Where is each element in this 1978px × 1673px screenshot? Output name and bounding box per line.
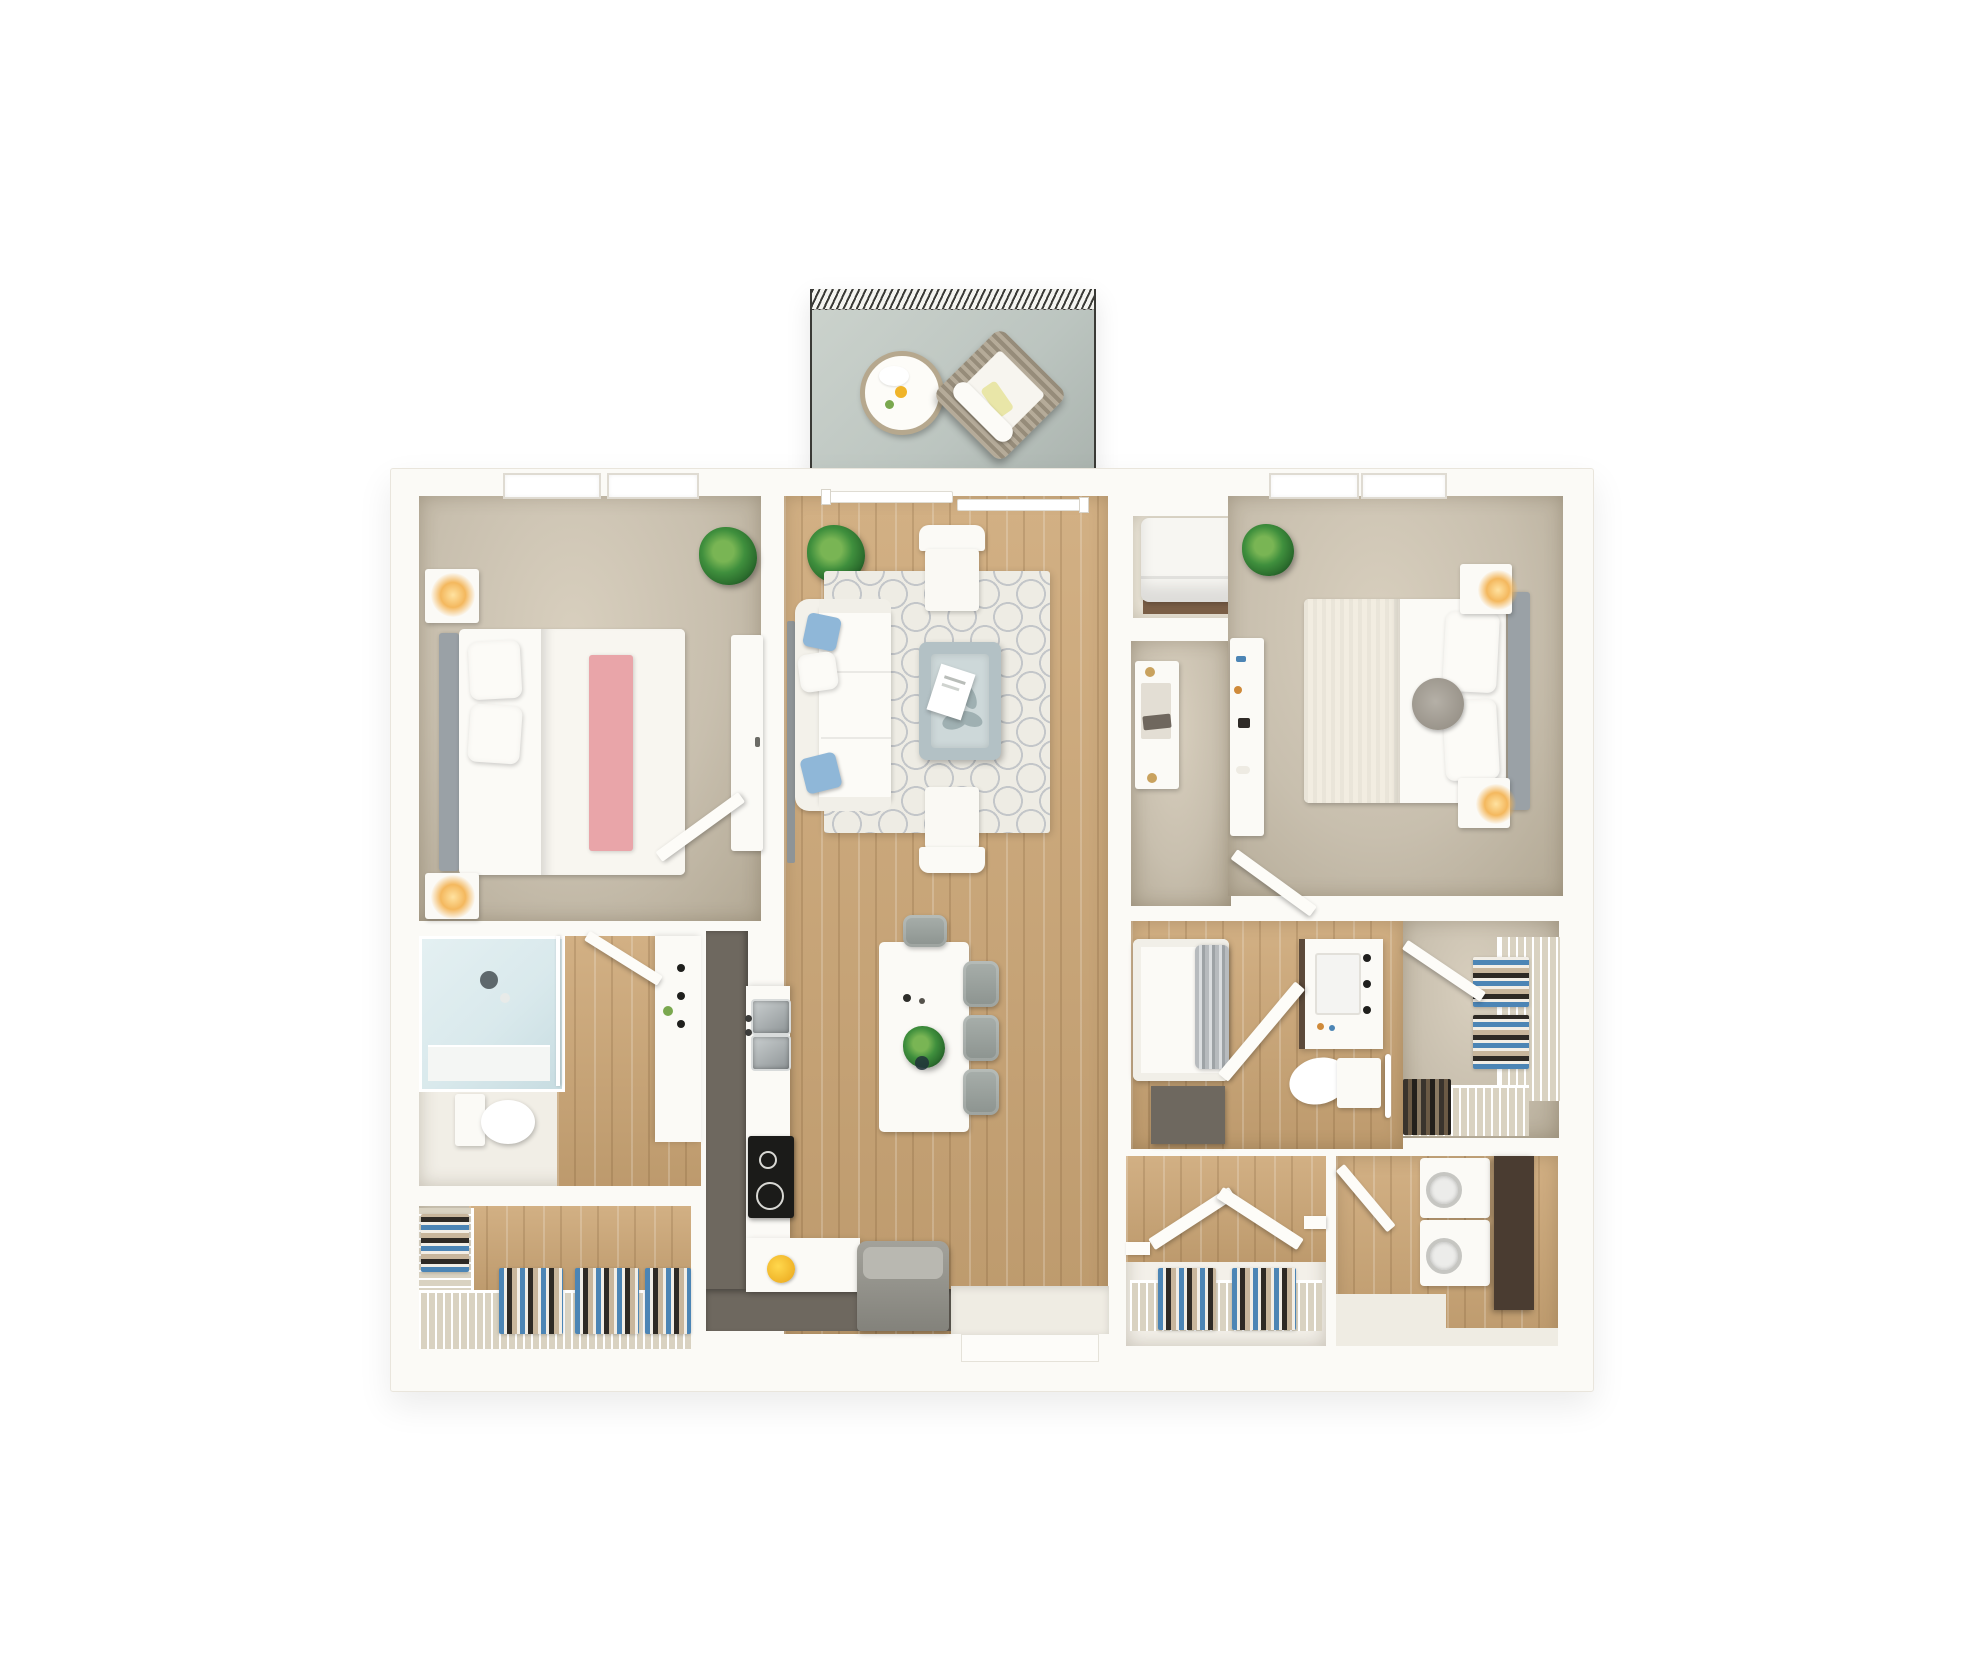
room-balcony xyxy=(810,289,1096,479)
burner-small xyxy=(759,1151,777,1169)
vanity1 xyxy=(655,936,701,1142)
closet1-clothes-2 xyxy=(575,1268,639,1334)
dining-chair-top xyxy=(903,915,947,947)
sofa-white-pillow xyxy=(797,651,840,694)
armchair-bottom-seat xyxy=(925,787,979,849)
bedroom1-window-right xyxy=(607,473,699,499)
bedroom2-knit-blanket xyxy=(1304,599,1400,803)
armchair-top xyxy=(919,525,985,615)
kitchen-cabinet-run-vertical xyxy=(706,931,748,1331)
closet1-clothes-left xyxy=(421,1214,469,1272)
bifold-sill-right xyxy=(1304,1216,1326,1229)
bedroom1-headboard xyxy=(439,633,459,871)
closet2-clothes-1 xyxy=(1473,957,1529,1007)
room-hallway xyxy=(1131,641,1231,906)
room-bedroom-2 xyxy=(1228,496,1563,896)
vanity2-sconce-1 xyxy=(1363,954,1371,962)
bedroom2-round-bolster xyxy=(1412,678,1464,730)
bedroom2-door xyxy=(1230,849,1316,916)
sliding-door-panel-left xyxy=(823,491,953,503)
bedroom2-window-left xyxy=(1269,473,1359,499)
utility-white-appliance xyxy=(1141,518,1235,602)
balcony-awning-hatch xyxy=(812,289,1094,310)
towel-bar xyxy=(1385,1054,1391,1118)
closet2-clothes-2 xyxy=(1473,1015,1529,1069)
bedroom2-window-right xyxy=(1361,473,1447,499)
desk-item-white xyxy=(1236,766,1250,774)
refrigerator xyxy=(857,1241,949,1331)
round-side-table xyxy=(860,351,944,435)
armchair-bottom xyxy=(919,783,985,873)
room-coat-closet xyxy=(1126,1156,1326,1346)
washer-door xyxy=(1426,1172,1462,1208)
vanity1-sconce-2 xyxy=(677,992,685,1000)
bedroom1-pillow-bottom xyxy=(467,703,523,764)
cooktop xyxy=(748,1136,794,1218)
laundry-tall-cabinet xyxy=(1494,1156,1534,1310)
burner-large xyxy=(756,1182,784,1210)
shower-head xyxy=(480,971,498,989)
bedroom2-lamp-top xyxy=(1478,570,1518,610)
laundry-step-floor-2 xyxy=(1336,1328,1558,1346)
bedroom2-desk-dresser xyxy=(1230,638,1264,836)
console-books xyxy=(1142,714,1171,731)
dining-island xyxy=(879,942,969,1132)
vanity1-sconce-1 xyxy=(677,964,685,972)
vanity2-item-blue xyxy=(1329,1025,1335,1031)
refrigerator-top xyxy=(863,1247,943,1279)
lime-decor xyxy=(885,400,894,409)
kitchen-sink-basin-1 xyxy=(751,999,791,1035)
sliding-door-panel-right xyxy=(957,499,1087,511)
dining-chair-right-3 xyxy=(963,1069,999,1115)
toilet1-bowl xyxy=(481,1100,535,1144)
vanity2-sconce-3 xyxy=(1363,1006,1371,1014)
sofa-blue-pillow-top xyxy=(802,612,842,652)
bedroom2-plant xyxy=(1242,524,1294,576)
room-bathroom-2 xyxy=(1131,921,1403,1149)
shower-glass-edge xyxy=(556,936,560,1086)
console-decor-gold-1 xyxy=(1145,667,1155,677)
vanity2 xyxy=(1299,939,1383,1049)
shower-stall xyxy=(419,936,565,1092)
wicker-lounge-chair xyxy=(932,327,1068,463)
toilet2-tank xyxy=(1337,1058,1381,1108)
armchair-top-back xyxy=(919,525,985,551)
sofa-arm-bottom xyxy=(819,797,891,811)
closet1-clothes-1 xyxy=(499,1268,563,1334)
kitchen-soap-dispenser xyxy=(745,1029,752,1036)
vanity1-sconce-3 xyxy=(677,1020,685,1028)
hall-console-table xyxy=(1135,661,1179,789)
entry-door-threshold xyxy=(961,1334,1099,1362)
bedroom1-lamp-top xyxy=(431,573,475,617)
wall-tv xyxy=(787,621,795,863)
desk-item-blue xyxy=(1236,656,1246,662)
entry-floor xyxy=(951,1286,1109,1334)
shower-control xyxy=(500,993,510,1003)
kitchen-sink-basin-2 xyxy=(751,1035,791,1071)
laundry-door xyxy=(1336,1164,1396,1232)
lemon-decor xyxy=(895,386,907,398)
closet1-clothes-3 xyxy=(645,1268,691,1334)
dresser-knob xyxy=(755,737,760,747)
bedroom1-dresser xyxy=(731,635,763,851)
utility-floor-strip xyxy=(1143,600,1231,614)
dryer xyxy=(1420,1220,1490,1286)
vanity1-greenery xyxy=(663,1006,673,1016)
sofa-arm-top xyxy=(819,599,891,613)
sliding-door-jamb-right xyxy=(1079,497,1089,513)
bathroom2-cabinet xyxy=(1151,1086,1225,1144)
sectional-sofa xyxy=(795,599,897,811)
desk-item-dark xyxy=(1238,718,1250,728)
fruit-bowl xyxy=(767,1255,795,1283)
console-decor-gold-2 xyxy=(1147,773,1157,783)
magazine-line-2 xyxy=(941,683,959,691)
bedroom1-window-left xyxy=(503,473,601,499)
bedroom1-plant xyxy=(699,527,757,585)
shower-pan xyxy=(428,1045,550,1081)
dining-chair-right-2 xyxy=(963,1015,999,1061)
kitchen-faucet xyxy=(745,1015,752,1022)
bedroom1-lamp-bottom xyxy=(431,875,475,919)
bedroom1-pink-throw xyxy=(589,655,633,851)
room-walk-in-closet xyxy=(1403,921,1559,1138)
coat-closet-clothes-1 xyxy=(1158,1268,1216,1330)
desk-item-orange xyxy=(1234,686,1242,694)
bedroom2-lamp-bottom xyxy=(1476,784,1516,824)
vanity2-sconce-2 xyxy=(1363,980,1371,988)
shower-curtain xyxy=(1195,945,1229,1069)
floor-plan-canvas xyxy=(0,0,1978,1673)
sliding-balcony-door xyxy=(821,485,1087,515)
armchair-top-seat xyxy=(925,549,979,611)
vanity2-sink xyxy=(1315,953,1361,1015)
coat-closet-clothes-2 xyxy=(1232,1268,1296,1330)
armchair-bottom-back xyxy=(919,847,985,873)
island-decor-dot-2 xyxy=(919,998,925,1004)
island-decor-dot-1 xyxy=(903,994,911,1002)
dining-chair-right-1 xyxy=(963,961,999,1007)
sofa-cushion-seam-2 xyxy=(821,737,891,739)
apartment-unit xyxy=(390,468,1594,1392)
bedroom1-pillow-top xyxy=(468,640,523,701)
vanity2-item-orange xyxy=(1317,1023,1324,1030)
washer xyxy=(1420,1158,1490,1218)
coffee-table xyxy=(919,642,1001,760)
appliance-seam xyxy=(1141,576,1235,579)
table-plate xyxy=(879,366,909,386)
bifold-sill-left xyxy=(1126,1242,1150,1255)
kitchen-counter-leg xyxy=(746,1238,860,1292)
island-plant-pot xyxy=(915,1056,929,1070)
dryer-door xyxy=(1426,1238,1462,1274)
sliding-door-jamb-left xyxy=(821,489,831,505)
room-laundry xyxy=(1336,1156,1558,1346)
console-tray xyxy=(1141,683,1171,739)
room-bathroom-1 xyxy=(419,936,701,1186)
bedroom2-headboard xyxy=(1508,592,1530,810)
bathroom2-door xyxy=(1218,981,1305,1081)
closet2-clothes-dark xyxy=(1403,1079,1451,1135)
room-closet-1 xyxy=(419,1206,691,1346)
